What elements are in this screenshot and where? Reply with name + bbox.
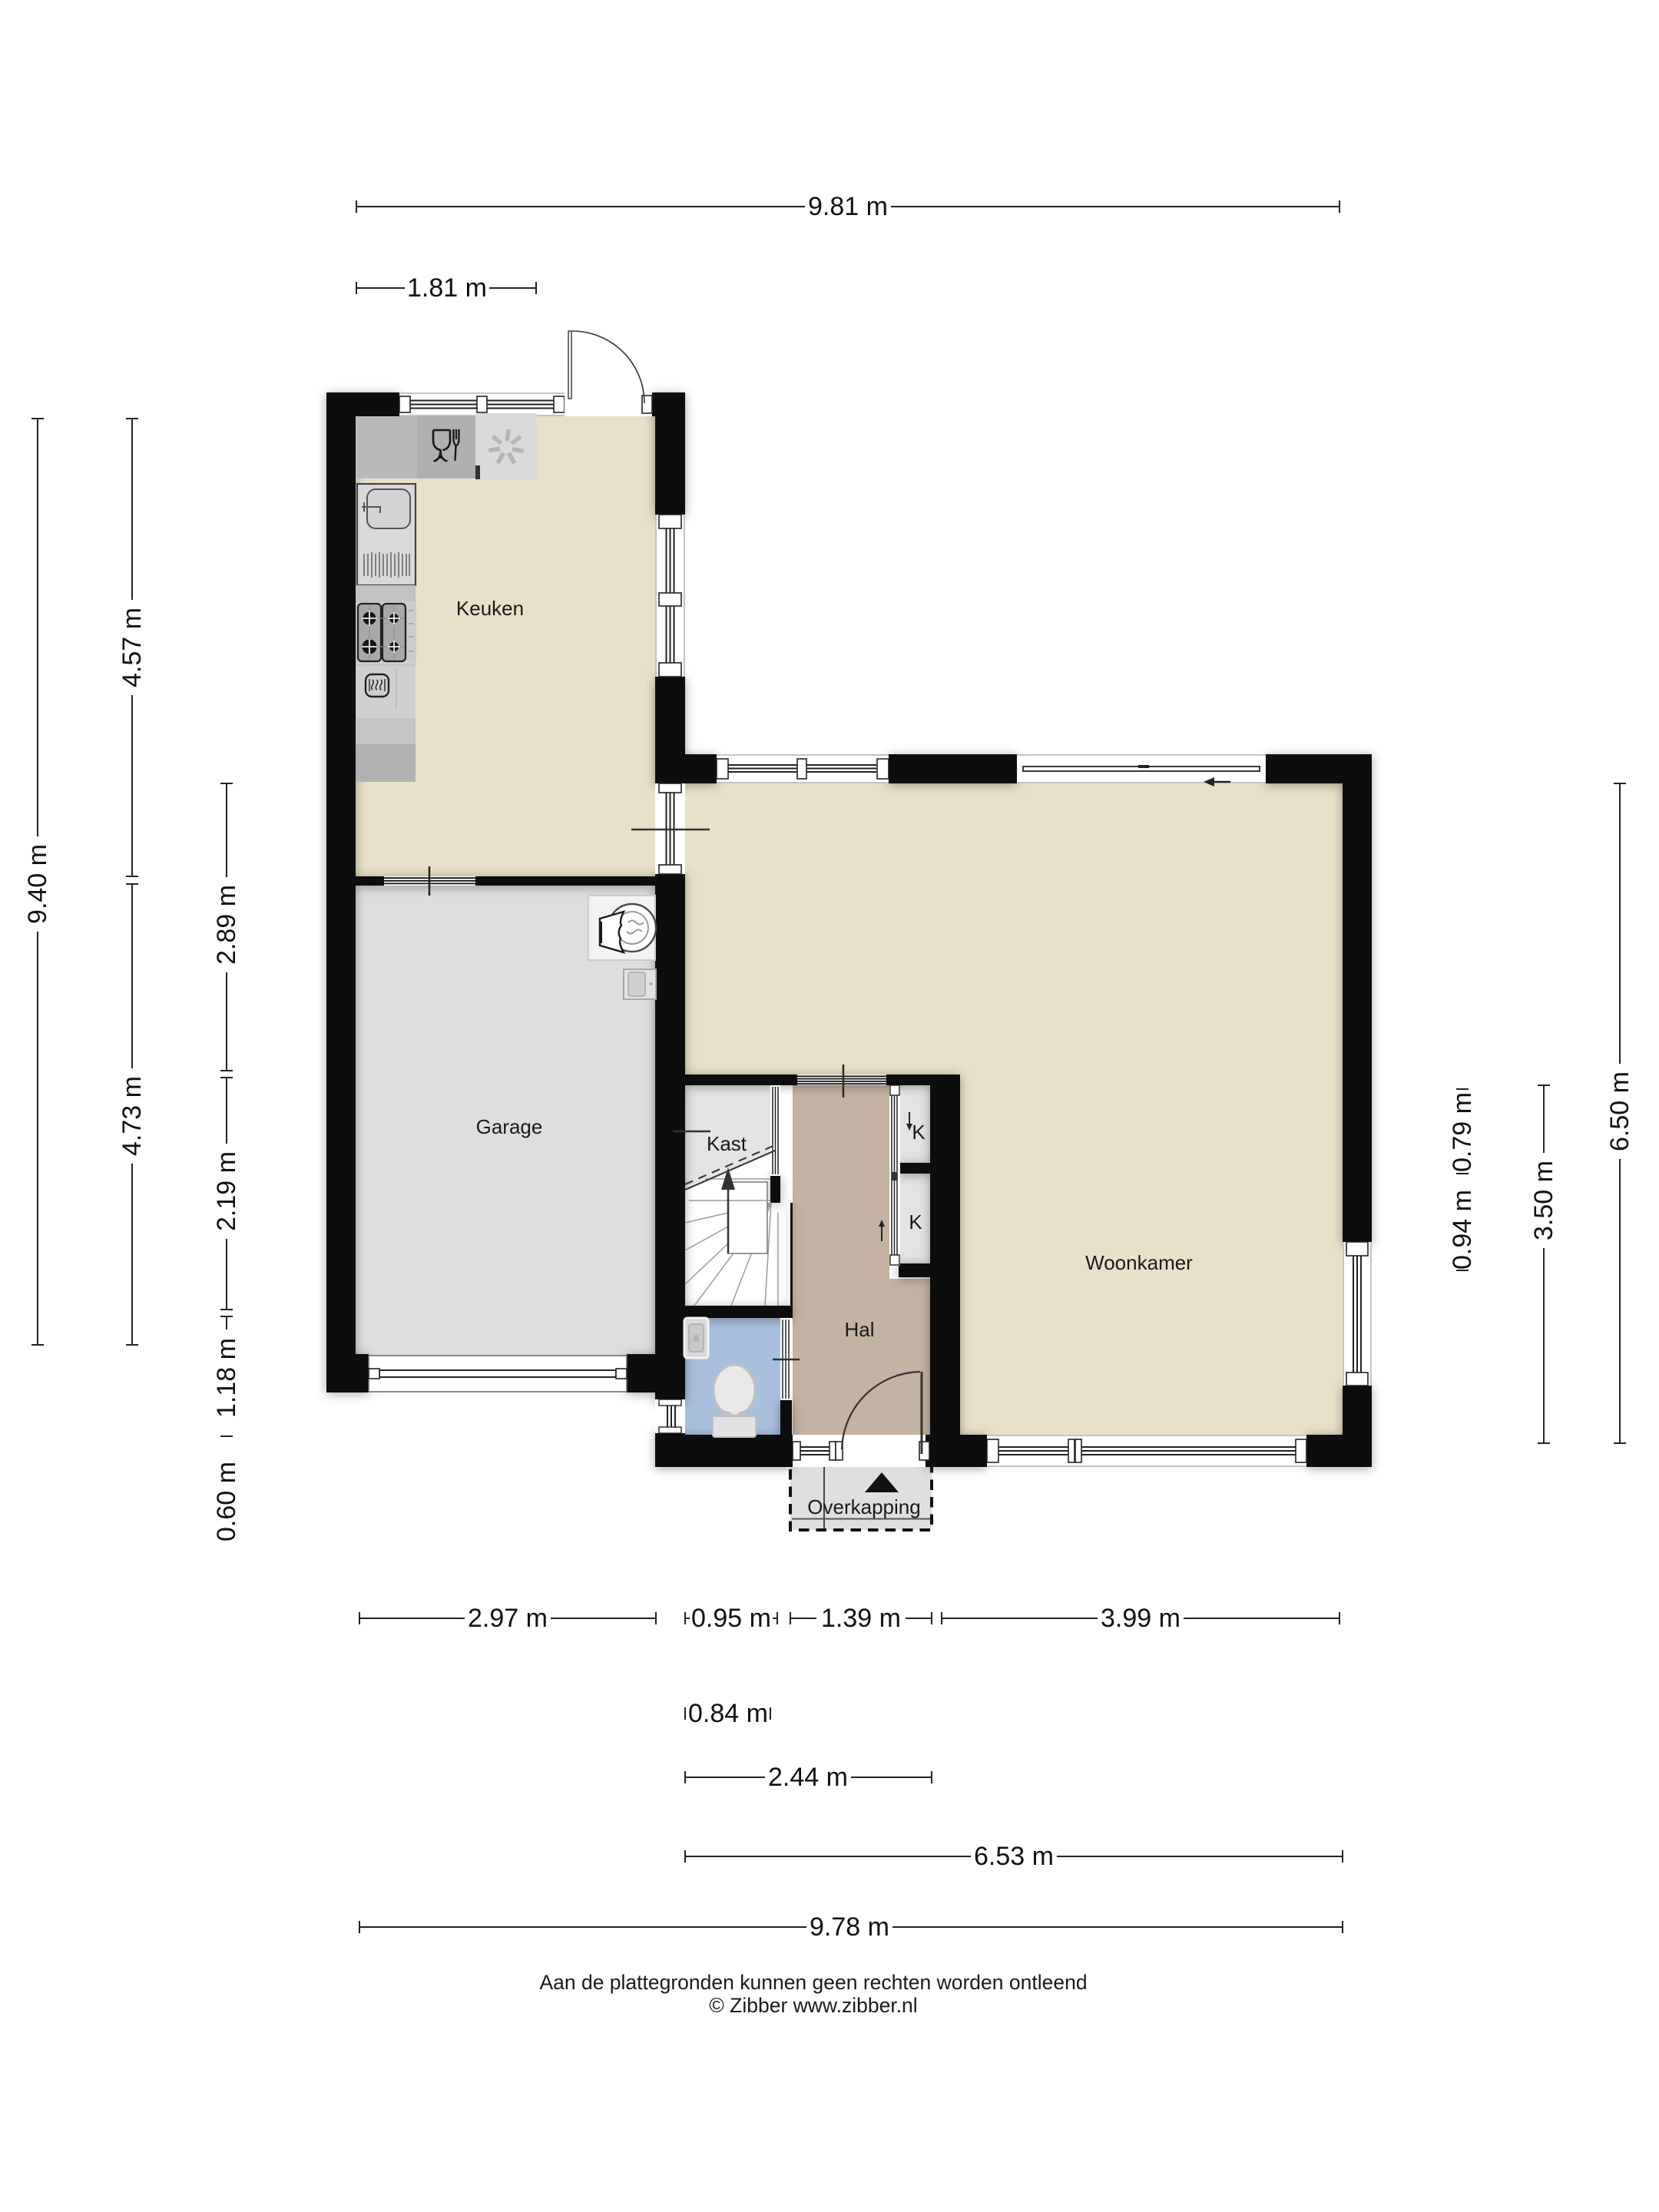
svg-text:1.18 m: 1.18 m [212,1338,241,1418]
svg-text:2.89 m: 2.89 m [212,885,241,965]
svg-text:9.81 m: 9.81 m [808,192,888,221]
svg-text:0.95 m: 0.95 m [691,1604,771,1633]
svg-text:4.57 m: 4.57 m [118,608,147,687]
svg-text:6.53 m: 6.53 m [974,1842,1054,1871]
svg-text:0.84 m: 0.84 m [688,1699,768,1728]
svg-text:2.44 m: 2.44 m [768,1763,848,1792]
svg-text:K: K [912,1121,926,1144]
svg-text:9.40 m: 9.40 m [23,844,52,924]
svg-text:4.73 m: 4.73 m [118,1076,147,1156]
svg-text:K: K [909,1210,922,1233]
svg-text:2.97 m: 2.97 m [468,1604,548,1633]
svg-text:1.81 m: 1.81 m [407,273,487,303]
svg-text:0.79 m: 0.79 m [1448,1092,1477,1172]
svg-text:9.78 m: 9.78 m [810,1912,889,1942]
svg-text:1.39 m: 1.39 m [821,1604,901,1633]
svg-text:Woonkamer: Woonkamer [1085,1251,1193,1274]
svg-text:Aan de plattegronden kunnen ge: Aan de plattegronden kunnen geen rechten… [539,1971,1087,1994]
svg-text:3.99 m: 3.99 m [1101,1604,1181,1633]
svg-text:0.60 m: 0.60 m [212,1462,241,1541]
svg-text:0.94 m: 0.94 m [1448,1190,1477,1270]
svg-text:Keuken: Keuken [456,597,524,620]
svg-text:Garage: Garage [476,1115,543,1138]
svg-text:2.19 m: 2.19 m [212,1151,241,1231]
svg-text:Overkapping: Overkapping [807,1495,920,1518]
svg-text:6.50 m: 6.50 m [1605,1071,1634,1151]
svg-text:Kast: Kast [707,1132,747,1155]
svg-text:Hal: Hal [844,1318,874,1341]
svg-text:© Zibber www.zibber.nl: © Zibber www.zibber.nl [709,1994,917,2017]
svg-text:3.50 m: 3.50 m [1529,1161,1558,1240]
